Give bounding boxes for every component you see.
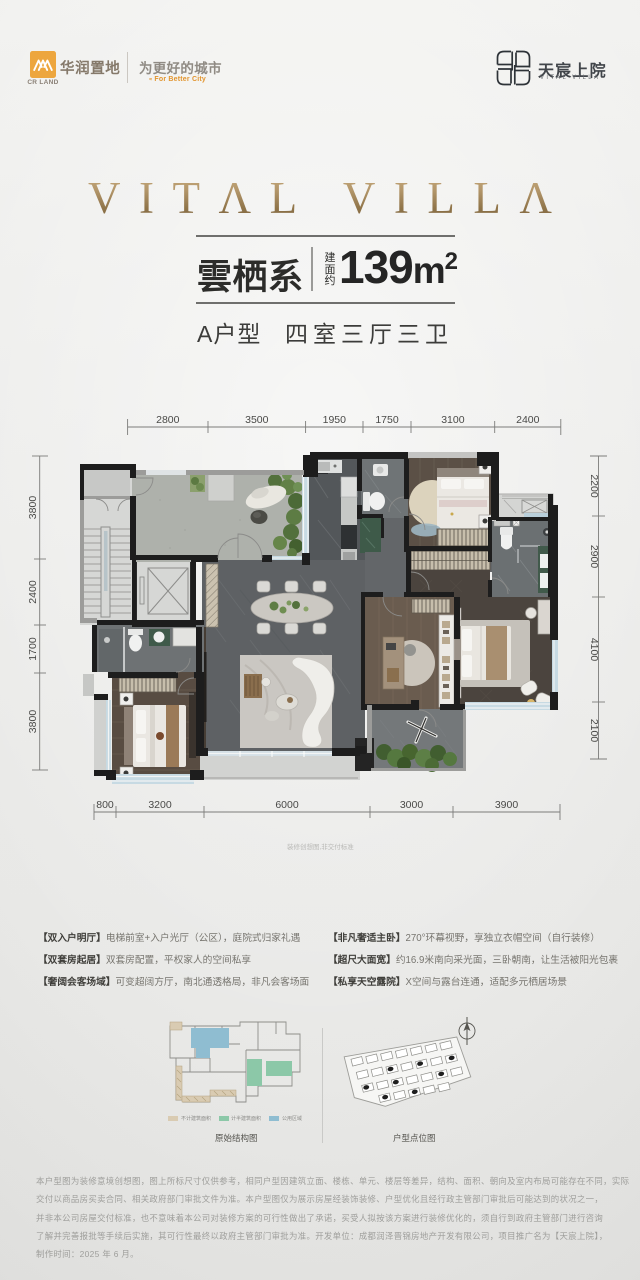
svg-text:3900: 3900 [495,799,519,811]
svg-text:1750: 1750 [375,414,399,426]
svg-text:2800: 2800 [156,414,180,426]
svg-text:3100: 3100 [441,414,465,426]
svg-text:800: 800 [96,799,114,811]
svg-text:3000: 3000 [400,799,424,811]
svg-text:2400: 2400 [27,580,39,604]
svg-text:3200: 3200 [148,799,172,811]
svg-text:2400: 2400 [516,414,540,426]
svg-text:2200: 2200 [588,474,600,498]
svg-text:3500: 3500 [245,414,269,426]
svg-text:1950: 1950 [323,414,347,426]
svg-text:2900: 2900 [588,545,600,569]
svg-text:4100: 4100 [588,638,600,662]
svg-text:3800: 3800 [27,710,39,734]
svg-text:2100: 2100 [588,719,600,743]
svg-text:3800: 3800 [27,496,39,520]
svg-text:6000: 6000 [275,799,299,811]
svg-text:1700: 1700 [27,637,39,661]
